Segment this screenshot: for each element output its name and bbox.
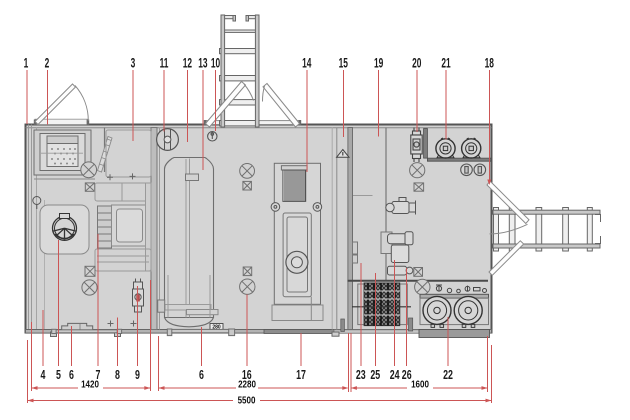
svg-text:23: 23 [356,368,366,382]
svg-text:6: 6 [199,368,204,382]
svg-text:17: 17 [296,368,306,382]
svg-text:4: 4 [41,368,47,382]
svg-text:22: 22 [443,368,453,382]
svg-text:6: 6 [69,368,74,382]
svg-text:11: 11 [160,57,169,71]
svg-text:15: 15 [339,57,348,71]
svg-text:21: 21 [441,57,450,71]
svg-text:19: 19 [374,57,383,71]
svg-text:13: 13 [198,57,207,71]
svg-text:2: 2 [45,57,50,71]
svg-text:9: 9 [135,368,140,382]
svg-text:3: 3 [131,57,136,71]
svg-text:10: 10 [211,57,220,71]
svg-text:12: 12 [183,57,192,71]
svg-text:8: 8 [115,368,120,382]
svg-text:20: 20 [412,57,421,71]
svg-text:1: 1 [24,57,29,71]
svg-text:14: 14 [302,57,312,71]
svg-text:26: 26 [402,368,412,382]
svg-text:5: 5 [56,368,61,382]
svg-text:1600: 1600 [411,379,429,390]
svg-text:1420: 1420 [81,379,99,390]
svg-text:24: 24 [390,368,400,382]
svg-text:25: 25 [370,368,380,382]
svg-text:18: 18 [485,57,494,71]
svg-text:2280: 2280 [238,379,256,390]
svg-text:5500: 5500 [238,395,256,406]
